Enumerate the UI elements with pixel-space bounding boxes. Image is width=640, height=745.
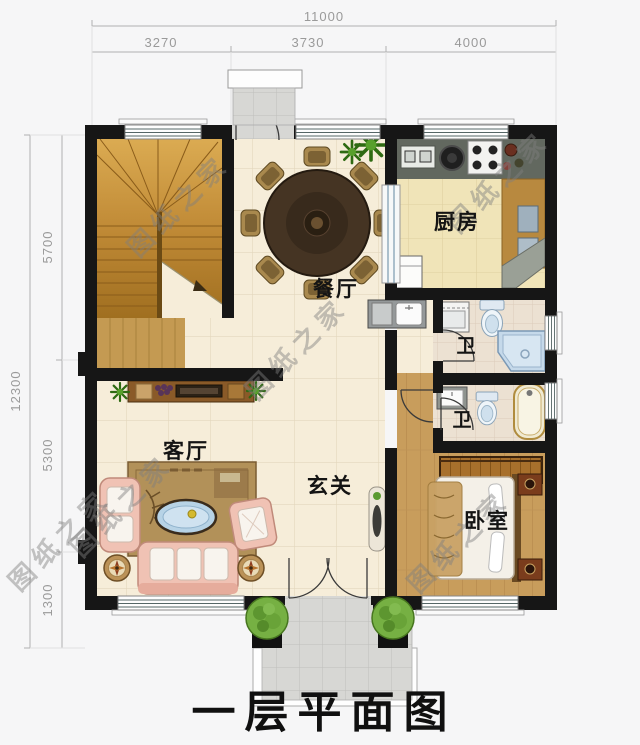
armchair-right: [228, 497, 278, 552]
dim-top-seg2: 3730: [292, 35, 325, 50]
top-porch: [228, 70, 302, 125]
dimension-lines-top: 11000 3270 3730 4000: [92, 9, 556, 125]
nightstand: [518, 474, 542, 495]
window: [418, 119, 514, 139]
dining-table-set: [241, 147, 393, 299]
bathtub-icon: [514, 384, 545, 439]
wok-icon: [440, 146, 464, 170]
foyer-console: [369, 487, 385, 551]
room-label-kitchen: 厨房: [434, 210, 480, 234]
window: [290, 119, 386, 139]
window: [545, 379, 562, 423]
room-label-bedroom: 卧室: [464, 509, 510, 533]
window: [545, 312, 562, 354]
coffee-table: [156, 500, 216, 534]
vanity: [368, 300, 426, 328]
page-title: 一层平面图: [192, 688, 457, 737]
nightstand: [518, 559, 542, 580]
window: [416, 596, 524, 615]
sliding-door: [382, 185, 400, 283]
pillow: [488, 532, 504, 573]
window: [119, 119, 207, 139]
room-label-foyer: 玄关: [307, 474, 353, 498]
floor-plan-page: 11000 3270 3730 4000 12300 5700 5300 130…: [0, 0, 640, 745]
dim-top-seg3: 4000: [455, 35, 488, 50]
room-label-bath-lower: 卫: [452, 410, 471, 431]
tv-console: [128, 381, 254, 402]
sofa-main: [138, 542, 238, 594]
room-label-living: 客厅: [163, 439, 209, 463]
window: [112, 596, 250, 615]
room-label-dining: 餐厅: [313, 277, 359, 301]
dim-top-seg1: 3270: [145, 35, 178, 50]
room-label-bath-upper: 卫: [456, 336, 475, 357]
dim-left-seg1: 5700: [40, 231, 55, 264]
floor-plan-image: 11000 3270 3730 4000 12300 5700 5300 130…: [0, 0, 640, 745]
dim-left-seg3: 1300: [40, 584, 55, 617]
dim-left-total: 12300: [8, 370, 23, 411]
kitchen-appliance-icon: [518, 206, 538, 232]
dim-top-total: 11000: [304, 9, 344, 24]
dim-left-seg2: 5300: [40, 439, 55, 472]
